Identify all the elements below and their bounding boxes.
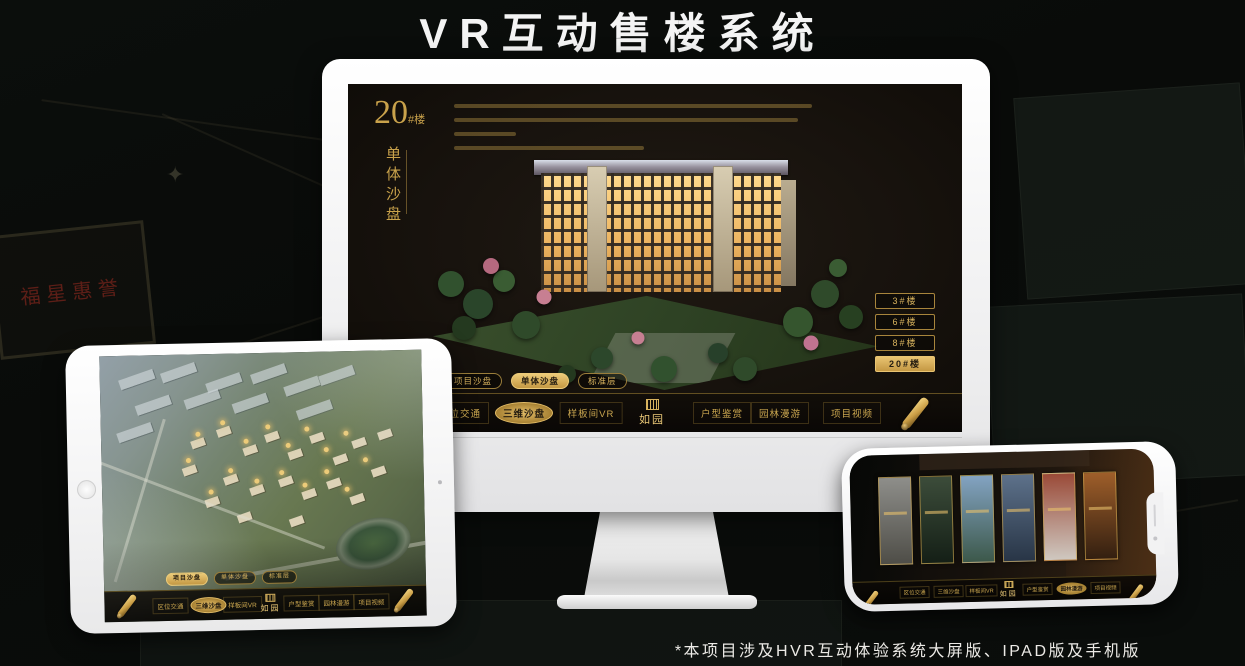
scroll-icon[interactable] — [117, 594, 138, 619]
brand-logo[interactable]: 如园 — [639, 399, 665, 427]
nav-unit-gallery[interactable]: 户型鉴赏 — [693, 402, 751, 424]
tablet-mockup: 项目沙盘 单体沙盘 标准层 区位交通 三维沙盘 样板间VR 如园 户型鉴赏 园林… — [65, 338, 457, 634]
tablet-tab-project-sandbox[interactable]: 项目沙盘 — [166, 572, 208, 586]
ceiling-beam — [919, 450, 1089, 470]
floor-button-8[interactable]: 8#楼 — [875, 335, 935, 351]
tablet-bottom-bar: 项目沙盘 单体沙盘 标准层 区位交通 三维沙盘 样板间VR 如园 户型鉴赏 园林… — [104, 568, 427, 623]
panel-gate-scene[interactable] — [878, 476, 913, 565]
page-title: VR互动售楼系统 — [0, 0, 1245, 61]
nav-project-video[interactable]: 项目视频 — [823, 402, 881, 424]
tree-decoration — [512, 311, 540, 339]
tablet-navbar: 区位交通 三维沙盘 样板间VR 如园 户型鉴赏 园林漫游 项目视频 — [104, 585, 427, 623]
logo-seal-icon — [265, 594, 275, 602]
tab-single-sandbox[interactable]: 单体沙盘 — [511, 373, 569, 389]
tree-decoration — [811, 280, 839, 308]
block-number: 20 — [374, 94, 408, 131]
tab-standard-floor[interactable]: 标准层 — [578, 373, 627, 389]
phone-brand-logo[interactable]: 如园 — [999, 581, 1017, 599]
tree-decoration — [708, 343, 728, 363]
panel-courtyard-scene[interactable] — [919, 475, 954, 564]
bg-plaque: 福星惠誉 — [0, 220, 156, 360]
building-trees — [433, 134, 878, 392]
tree-decoration — [783, 307, 813, 337]
logo-seal-icon — [646, 399, 659, 410]
tree-decoration — [651, 356, 677, 382]
tree-decoration — [804, 335, 819, 350]
phone-nav-unit-gallery[interactable]: 户型鉴赏 — [1022, 583, 1052, 596]
bg-map-photo — [1013, 82, 1245, 299]
scroll-icon[interactable] — [901, 396, 930, 430]
tab-project-sandbox[interactable]: 项目沙盘 — [444, 373, 502, 389]
footnote-text: *本项目涉及HVR互动体验系统大屏版、IPAD版及手机版 — [675, 637, 1141, 661]
phone-navbar: 区位交通 三维沙盘 样板间VR 如园 户型鉴赏 园林漫游 项目视频 — [852, 574, 1156, 604]
tablet-home-button[interactable] — [77, 480, 96, 499]
tablet-nav-showroom-vr[interactable]: 样板间VR — [223, 596, 262, 613]
floor-button-20[interactable]: 20#楼 — [875, 356, 935, 372]
floor-button-3[interactable]: 3#楼 — [875, 293, 935, 309]
scroll-icon[interactable] — [1128, 584, 1144, 603]
phone-nav-3d-sandbox[interactable]: 三维沙盘 — [933, 585, 963, 598]
phone-nav-garden-tour[interactable]: 园林漫游 — [1056, 582, 1086, 595]
tablet-tab-standard-floor[interactable]: 标准层 — [262, 570, 297, 584]
nav-showroom-vr[interactable]: 样板间VR — [560, 402, 623, 424]
block-subtitle: 单体沙盘 — [382, 146, 403, 266]
logo-seal-icon — [1004, 581, 1013, 588]
tablet-sub-tabs: 项目沙盘 单体沙盘 标准层 — [166, 570, 297, 586]
scroll-icon[interactable] — [394, 588, 415, 613]
decorative-rule — [406, 150, 407, 214]
phone-nav-project-video[interactable]: 项目视频 — [1090, 581, 1120, 594]
floor-button-6[interactable]: 6#楼 — [875, 314, 935, 330]
nav-3d-sandbox[interactable]: 三维沙盘 — [495, 402, 553, 424]
tree-decoration — [438, 271, 464, 297]
logo-name: 如园 — [639, 411, 665, 427]
camera-icon — [1153, 536, 1157, 540]
tree-decoration — [537, 289, 552, 304]
tablet-nav-unit-gallery[interactable]: 户型鉴赏 — [283, 595, 319, 612]
tree-decoration — [463, 289, 493, 319]
sub-tab-group: 项目沙盘 单体沙盘 标准层 — [444, 373, 627, 389]
tree-decoration — [452, 316, 476, 340]
logo-name: 如园 — [1000, 589, 1018, 599]
monitor-stand — [584, 512, 729, 598]
tree-decoration — [733, 357, 757, 381]
tablet-nav-garden-tour[interactable]: 园林漫游 — [318, 594, 354, 611]
tree-decoration — [829, 259, 847, 277]
tree-decoration — [839, 305, 863, 329]
tree-decoration — [591, 347, 613, 369]
block-label: 20#楼 — [374, 96, 425, 130]
phone-nav-showroom-vr[interactable]: 样板间VR — [965, 584, 997, 597]
phone-screen: 区位交通 三维沙盘 样板间VR 如园 户型鉴赏 园林漫游 项目视频 — [849, 448, 1157, 604]
panel-interior-scene[interactable] — [1083, 471, 1118, 560]
phone-notch — [1146, 492, 1165, 554]
logo-name: 如园 — [260, 603, 280, 614]
tablet-tab-single-sandbox[interactable]: 单体沙盘 — [214, 571, 256, 585]
tablet-camera-icon — [438, 480, 442, 484]
description-text-line — [454, 118, 798, 122]
bg-plaque-text: 福星惠誉 — [19, 270, 125, 310]
tablet-screen: 项目沙盘 单体沙盘 标准层 区位交通 三维沙盘 样板间VR 如园 户型鉴赏 园林… — [99, 350, 427, 623]
tablet-brand-logo[interactable]: 如园 — [260, 594, 280, 614]
panel-autumn-scene[interactable] — [1042, 472, 1077, 561]
tree-decoration — [483, 258, 499, 274]
building-render[interactable] — [433, 134, 878, 392]
block-suffix: #楼 — [408, 114, 425, 126]
description-text-line — [454, 104, 812, 108]
tablet-nav-3d-sandbox[interactable]: 三维沙盘 — [190, 597, 226, 614]
tree-decoration — [631, 331, 644, 344]
panel-building-sky-scene[interactable] — [960, 474, 995, 563]
phone-nav-location-traffic[interactable]: 区位交通 — [899, 586, 929, 599]
monitor-base — [557, 595, 757, 609]
poster: 福星惠誉 ✦ VR互动售楼系统 20#楼 单体沙盘 — [0, 0, 1245, 666]
tablet-nav-location-traffic[interactable]: 区位交通 — [152, 598, 188, 615]
floor-button-group: 3#楼 6#楼 8#楼 20#楼 — [875, 293, 935, 372]
tablet-nav-project-video[interactable]: 项目视频 — [353, 593, 389, 610]
scene-panel-strip — [878, 471, 1118, 565]
tree-decoration — [493, 270, 515, 292]
compass-icon: ✦ — [166, 162, 184, 188]
nav-garden-tour[interactable]: 园林漫游 — [751, 402, 809, 424]
speaker-icon — [1153, 504, 1156, 526]
bg-road-line — [41, 99, 338, 143]
phone-mockup: 区位交通 三维沙盘 样板间VR 如园 户型鉴赏 园林漫游 项目视频 — [841, 441, 1179, 612]
panel-tower-scene[interactable] — [1001, 473, 1036, 562]
scroll-icon[interactable] — [863, 590, 879, 605]
